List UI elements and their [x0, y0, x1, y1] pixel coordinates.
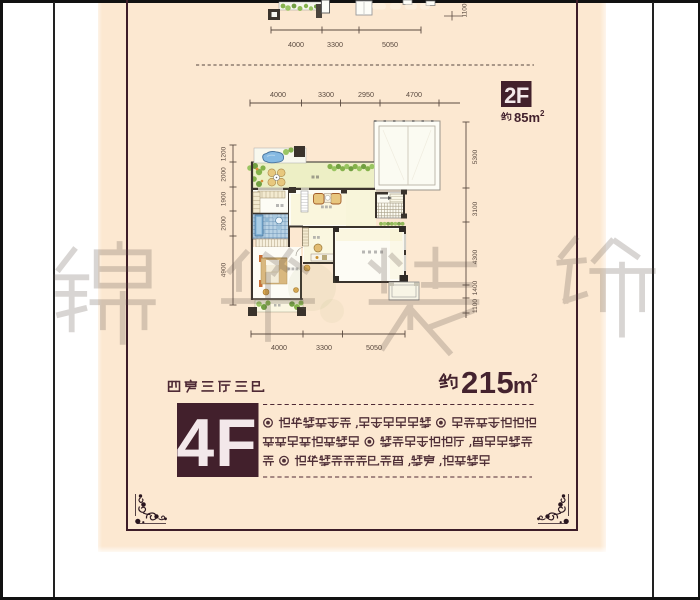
svg-text:4700: 4700	[406, 90, 422, 99]
svg-text:5050: 5050	[366, 343, 382, 352]
svg-text:4000: 4000	[288, 40, 304, 49]
svg-text:3300: 3300	[318, 90, 334, 99]
svg-text:3300: 3300	[327, 40, 343, 49]
svg-text:4900: 4900	[221, 262, 228, 277]
svg-text:5050: 5050	[382, 40, 398, 49]
svg-text:5300: 5300	[472, 149, 479, 164]
svg-text:2F: 2F	[504, 83, 529, 108]
svg-text:1100: 1100	[462, 3, 469, 17]
svg-text:85m: 85m	[514, 110, 540, 125]
svg-text:2: 2	[540, 109, 545, 118]
svg-text:3300: 3300	[316, 343, 332, 352]
svg-text:215: 215	[461, 365, 514, 400]
svg-text:4000: 4000	[271, 343, 287, 352]
svg-text:2000: 2000	[221, 216, 228, 231]
svg-text:4000: 4000	[270, 90, 286, 99]
svg-text:1900: 1900	[221, 191, 228, 206]
svg-text:4F: 4F	[176, 405, 257, 481]
svg-text:3100: 3100	[472, 201, 479, 216]
svg-text:2: 2	[531, 371, 538, 385]
svg-text:1200: 1200	[221, 146, 228, 161]
svg-text:2950: 2950	[358, 90, 374, 99]
svg-text:1400: 1400	[472, 280, 479, 295]
svg-text:2000: 2000	[221, 167, 228, 182]
svg-text:m: m	[513, 373, 533, 398]
